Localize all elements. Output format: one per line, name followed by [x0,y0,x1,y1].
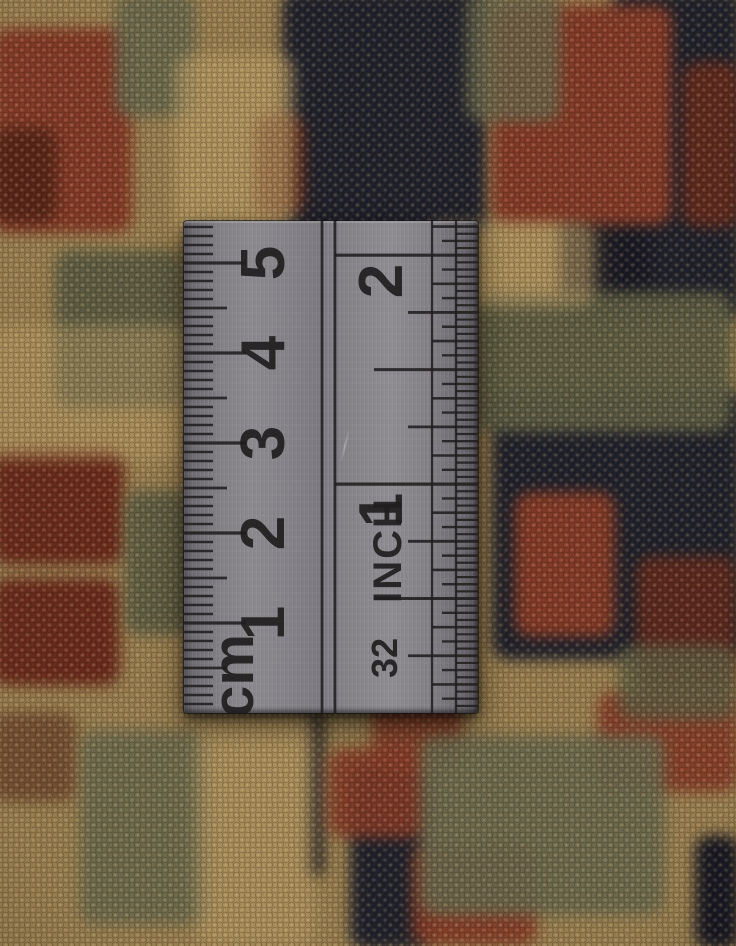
metal-ruler: cm INCH 32 1234512 [184,221,478,713]
rug-motif-rust [515,492,615,637]
rug-motif-rustDark [0,450,124,565]
inch-fraction-label: 32 [367,638,403,678]
rug-motif-tanLight [196,714,314,946]
rug-macro-photo: cm INCH 32 1234512 [0,0,736,946]
inch-numeral-2: 2 [351,264,413,298]
rug-motif-greenGray [420,735,665,915]
cm-numeral-2: 2 [233,516,295,550]
rug-motif-maroon [0,128,57,223]
cm-unit-label: cm [205,634,263,713]
rug-motif-green [476,292,732,432]
rug-motif-greenGray [466,0,561,122]
rug-motif-navy [282,0,487,240]
rug-motif-maroon [0,712,77,802]
rug-motif-rustDark [0,578,120,686]
rug-motif-rustDark [682,62,736,227]
rug-motif-tanLight [175,55,295,240]
cm-numeral-1: 1 [233,606,295,640]
cm-numeral-5: 5 [233,246,295,280]
cm-numeral-4: 4 [233,336,295,370]
rug-motif-tanLight [0,325,192,460]
rug-motif-green [125,490,190,635]
cm-numeral-3: 3 [233,426,295,460]
rug-motif-greenGray [80,730,208,925]
rug-motif-green [618,645,736,720]
inch-numeral-1: 1 [351,493,413,527]
rug-motif-navyDeep [695,835,736,946]
